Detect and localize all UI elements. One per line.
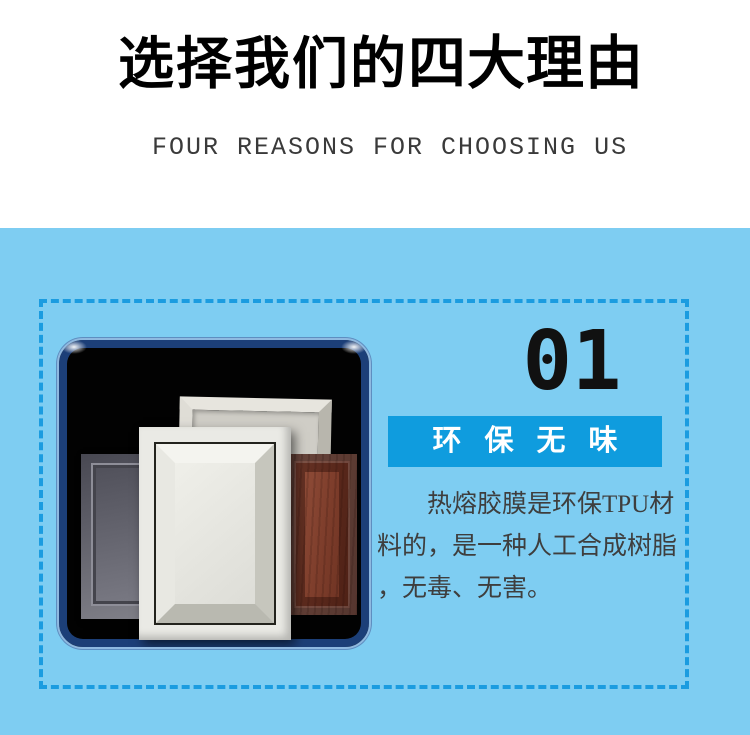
reason-badge: 环保无味 [388,416,662,467]
reason-text-line: ，无毒、无害。 [377,568,691,610]
reason-number: 01 [497,321,647,403]
product-image-frame [57,338,371,649]
reason-description: 热熔胶膜是环保TPU材 料的，是一种人工合成树脂 ，无毒、无害。 [377,484,691,610]
page-subtitle: FOUR REASONS FOR CHOOSING US [152,133,628,162]
cabinet-door-white-front-trim [154,442,276,625]
cabinet-door-white-front-panel [175,463,255,604]
reason-text-line: 热熔胶膜是环保TPU材 [377,484,691,526]
page: 选择我们的四大理由 FOUR REASONS FOR CHOOSING US [0,0,750,735]
page-title: 选择我们的四大理由 [118,32,644,104]
reasons-section: 01 环保无味 热熔胶膜是环保TPU材 料的，是一种人工合成树脂 ，无毒、无害。 [0,228,750,735]
cabinet-door-white-front-bevel [156,444,274,623]
cabinet-door-white-front [139,427,291,640]
reason-text-line: 料的，是一种人工合成树脂 [377,526,691,568]
title-regular: 选择我们的 [118,34,408,96]
cabinet-door-wood [287,454,357,615]
cabinet-door-wood-grain [287,454,357,615]
title-bold: 四大理由 [408,31,644,96]
